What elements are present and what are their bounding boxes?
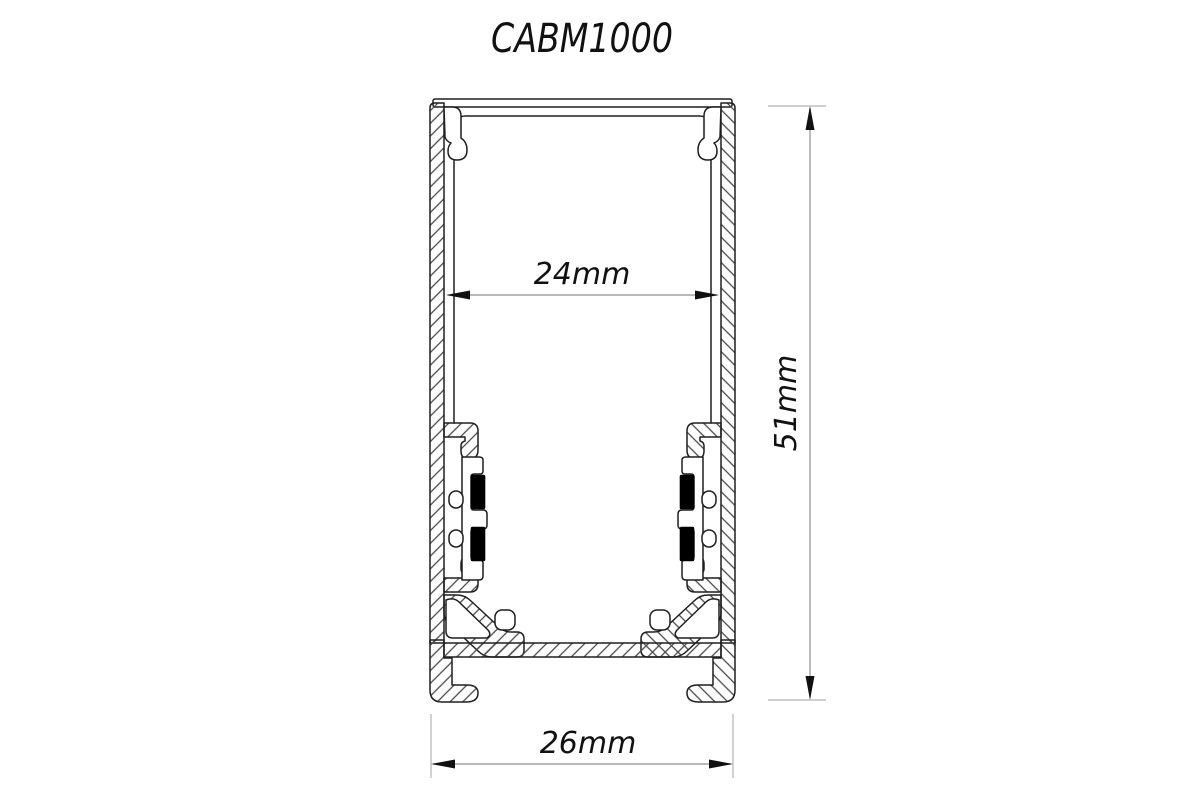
arrowhead-down-icon bbox=[806, 676, 815, 700]
profile-right-half bbox=[641, 103, 735, 702]
arrowhead-right-icon bbox=[695, 291, 719, 300]
dimension-label-overall-height: 51mm bbox=[769, 355, 804, 452]
dimension-label-inner-width: 24mm bbox=[534, 257, 631, 292]
dimension-overall-width: 26mm bbox=[431, 714, 733, 778]
dimension-inner-width: 24mm bbox=[446, 257, 719, 300]
arrowhead-left-icon bbox=[446, 291, 470, 300]
profile-left-half bbox=[430, 103, 524, 702]
top-cover-plate bbox=[433, 99, 732, 107]
arrowhead-left-icon bbox=[431, 760, 455, 769]
drawing-canvas: 24mm 51mm 26mm CABM1000 bbox=[0, 0, 1200, 800]
technical-drawing: 24mm 51mm 26mm CABM1000 bbox=[0, 0, 1200, 800]
drawing-title: CABM1000 bbox=[491, 16, 673, 62]
dimension-overall-height: 51mm bbox=[768, 106, 826, 700]
arrowhead-up-icon bbox=[806, 106, 815, 130]
arrowhead-right-icon bbox=[709, 760, 733, 769]
bottom-plate bbox=[444, 643, 721, 657]
dimension-label-overall-width: 26mm bbox=[540, 726, 637, 761]
